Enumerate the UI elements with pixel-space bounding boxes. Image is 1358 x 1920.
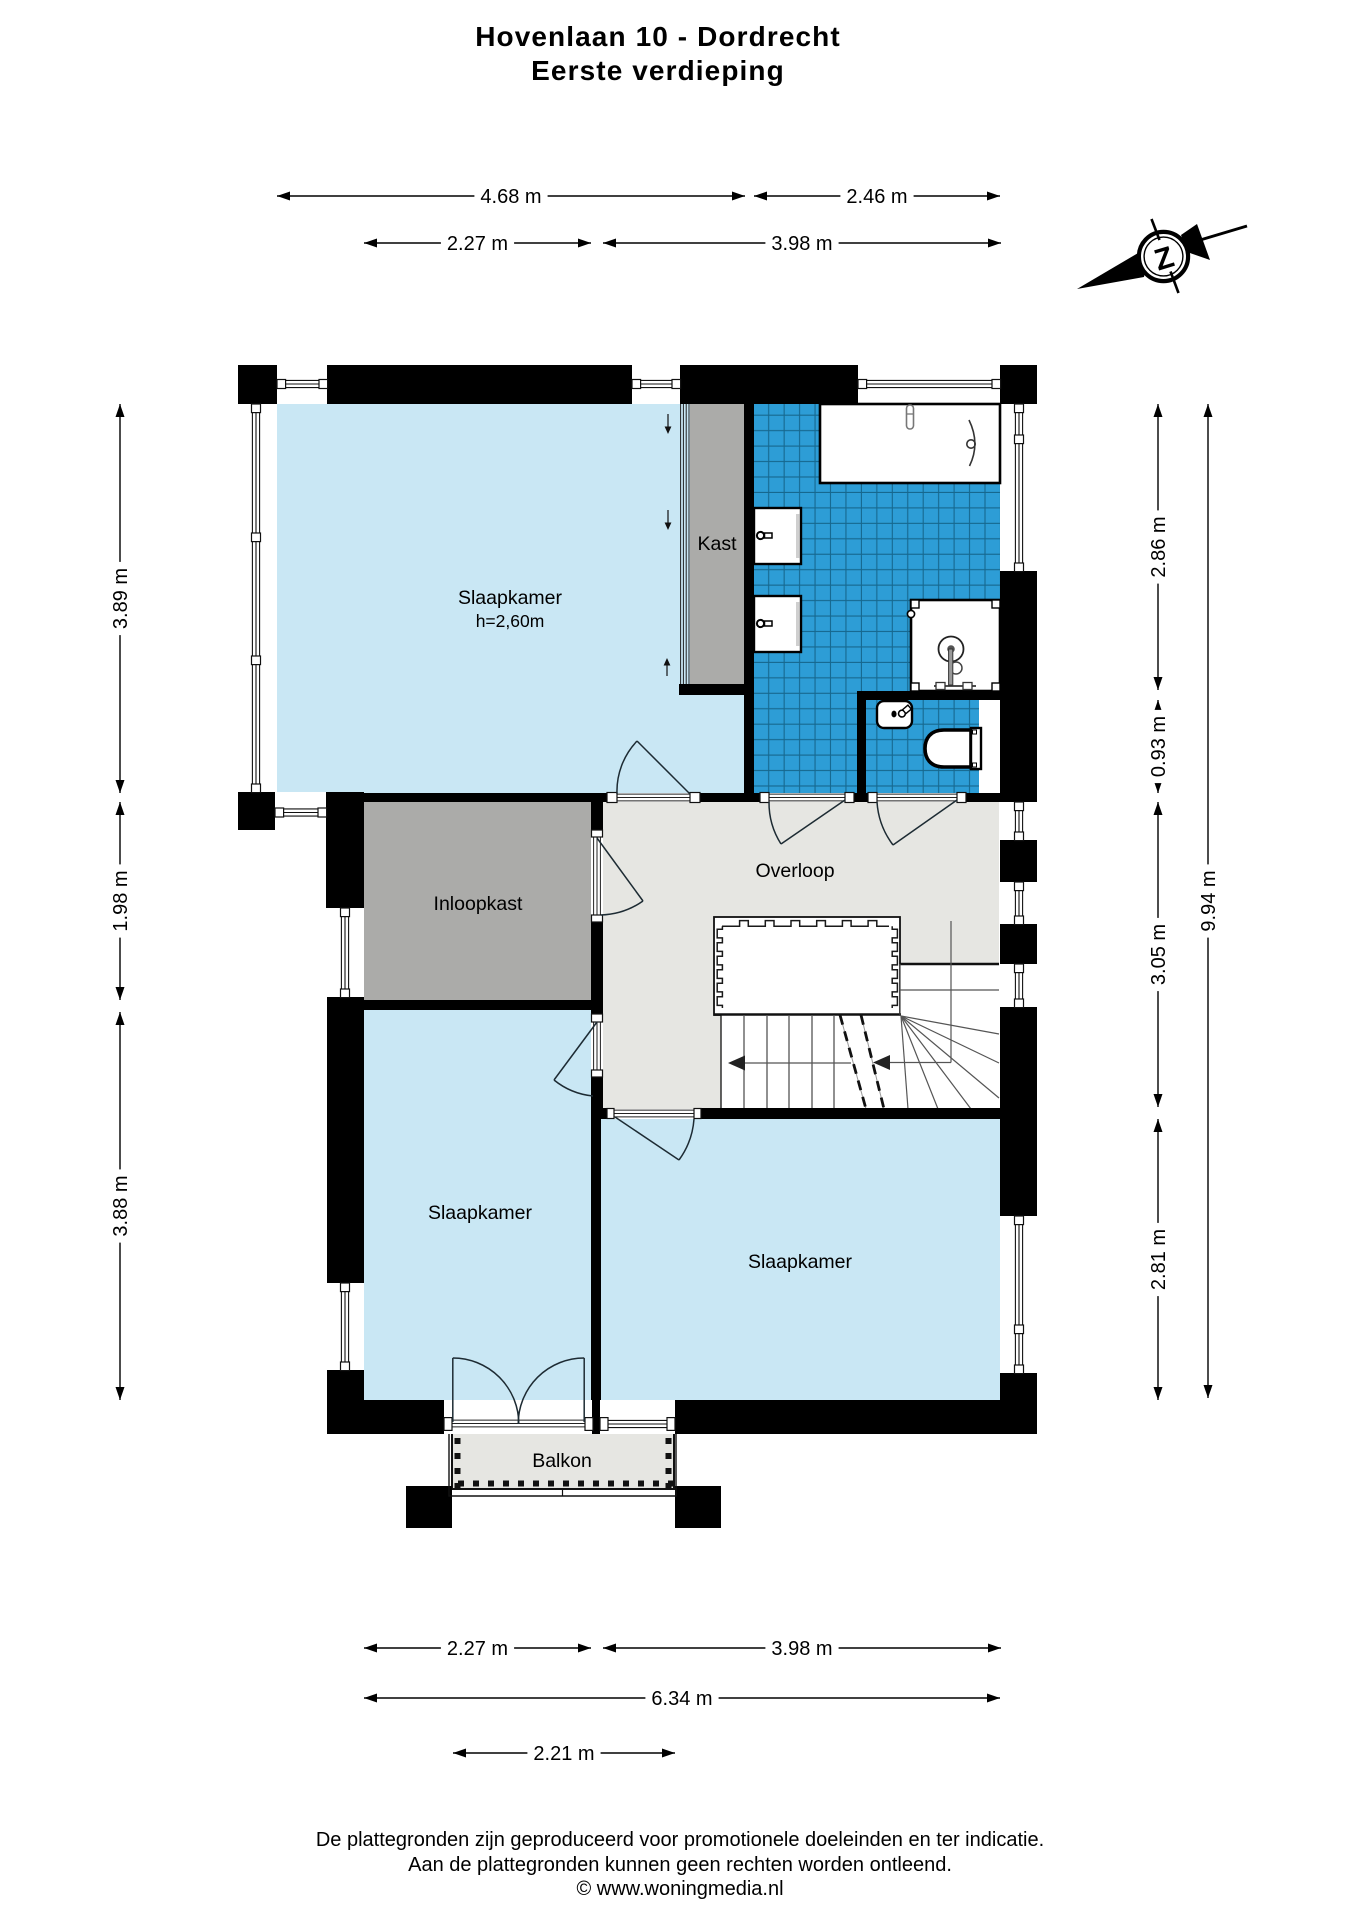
svg-text:9.94 m: 9.94 m [1198, 870, 1220, 931]
svg-text:2.27 m: 2.27 m [447, 1638, 508, 1660]
svg-text:2.27 m: 2.27 m [447, 233, 508, 255]
svg-text:Aan de plattegronden kunnen ge: Aan de plattegronden kunnen geen rechten… [408, 1854, 952, 1876]
svg-text:Overloop: Overloop [755, 860, 834, 882]
svg-text:3.98 m: 3.98 m [771, 233, 832, 255]
svg-text:3.05 m: 3.05 m [1148, 924, 1170, 985]
svg-text:Hovenlaan 10 - Dordrecht: Hovenlaan 10 - Dordrecht [475, 21, 841, 52]
svg-text:3.88 m: 3.88 m [110, 1175, 132, 1236]
svg-text:Eerste verdieping: Eerste verdieping [531, 55, 785, 86]
svg-text:Slaapkamer: Slaapkamer [748, 1251, 853, 1273]
svg-text:1.98 m: 1.98 m [110, 870, 132, 931]
svg-text:2.86 m: 2.86 m [1148, 516, 1170, 577]
svg-text:4.68 m: 4.68 m [480, 186, 541, 208]
svg-text:3.89 m: 3.89 m [110, 568, 132, 629]
svg-text:Kast: Kast [697, 533, 737, 555]
svg-text:Slaapkamer: Slaapkamer [458, 587, 563, 609]
svg-text:2.81 m: 2.81 m [1148, 1229, 1170, 1290]
svg-text:Slaapkamer: Slaapkamer [428, 1202, 533, 1224]
svg-text:2.21 m: 2.21 m [533, 1743, 594, 1765]
svg-text:2.46 m: 2.46 m [846, 186, 907, 208]
svg-text:0.93 m: 0.93 m [1148, 716, 1170, 777]
svg-text:De plattegronden zijn geproduc: De plattegronden zijn geproduceerd voor … [316, 1829, 1044, 1851]
svg-text:Inloopkast: Inloopkast [434, 893, 523, 915]
svg-text:3.98 m: 3.98 m [771, 1638, 832, 1660]
svg-text:© www.woningmedia.nl: © www.woningmedia.nl [576, 1878, 783, 1900]
svg-text:h=2,60m: h=2,60m [476, 611, 545, 631]
svg-text:Balkon: Balkon [532, 1450, 592, 1472]
svg-text:6.34 m: 6.34 m [651, 1688, 712, 1710]
